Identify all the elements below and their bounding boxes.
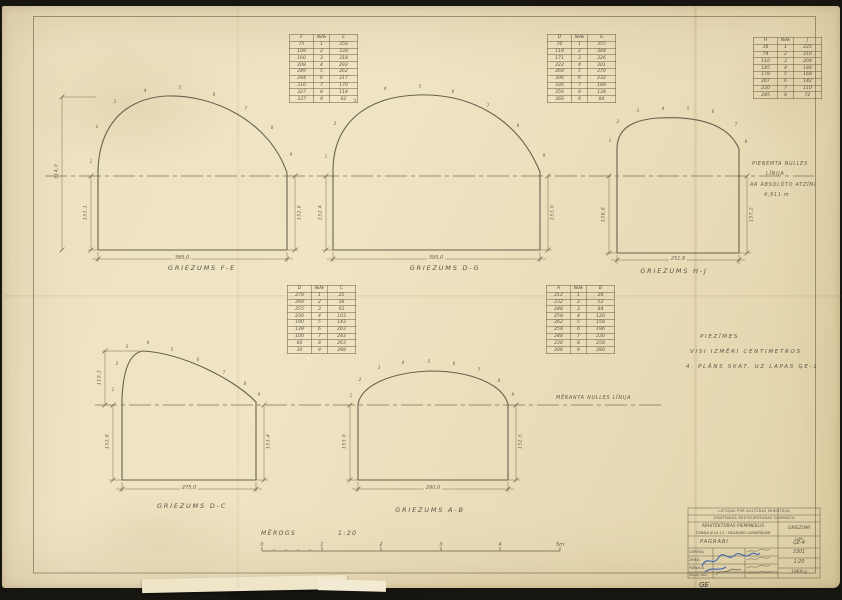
vdim-dg-left: 152,4 (319, 198, 324, 228)
table-cell: 262 (330, 68, 358, 75)
section-fe-outline (98, 96, 287, 250)
table-cell: 292 (330, 62, 358, 69)
table-cell: 232 (547, 299, 571, 306)
table-cell: 268 (548, 68, 572, 75)
vdim-fe-outer: 314,0 (55, 157, 60, 187)
width-dim-dg: 395,0 (427, 255, 445, 261)
titleblock-role-1: UZMĒRĪJA (689, 550, 712, 554)
scale-bar (262, 547, 560, 551)
table-cell: 301 (588, 62, 616, 69)
table-cell: 8 (572, 89, 588, 96)
arch-point-number: 1 (90, 159, 93, 164)
table-row: 3066232 (548, 75, 616, 82)
notes-line-plan-ref: 4. PLĀNS SKAT. UZ LAPAS ĢE-1 (686, 364, 818, 370)
table-row: 2069280 (547, 347, 615, 354)
arch-point-number: 4 (384, 86, 387, 91)
arch-point-number: 4 (144, 88, 147, 93)
table-cell: 225 (794, 44, 822, 51)
table-cell: 7 (571, 333, 587, 340)
arch-point-number: 4 (402, 360, 405, 365)
upper-zero-line-text-1: PIEŅEMTA NULLES (752, 162, 808, 167)
table-cell: 168 (794, 71, 822, 78)
titleblock-subject: PAGRABI (700, 539, 729, 545)
arch-point-number: 9 (290, 152, 293, 157)
table-cell: 158 (587, 319, 615, 326)
arch-point-number: 2 (96, 124, 99, 129)
table-cell: 84 (588, 96, 616, 103)
arch-point-number: 8 (745, 139, 748, 144)
arch-point-number: 3 (126, 344, 129, 349)
titleblock-scale: 1:20 (779, 560, 819, 565)
arch-point-number: 1 (350, 393, 353, 398)
table-cell: 143 (328, 319, 356, 326)
table-cell: 4 (312, 313, 328, 320)
arch-point-number: 7 (223, 370, 226, 375)
table-row: 3278118 (290, 89, 358, 96)
coordinate-table-dc: D№№C278121269236255363230410319051431386… (287, 285, 356, 354)
scale-tick-label: 1 (320, 542, 323, 548)
section-ab-point-numbers: 123456789 (350, 359, 515, 398)
vdim-ab-right: 152,5 (519, 427, 524, 457)
table-row: 248384 (547, 306, 615, 313)
dimension-ticks (60, 95, 750, 492)
table-cell: 9 (571, 347, 587, 354)
arch-point-number: 7 (478, 367, 481, 372)
table-cell: 118 (548, 48, 572, 55)
scale-tick-label: 3 (439, 542, 442, 548)
table-cell: 6 (571, 326, 587, 333)
table-header-cell: №№ (572, 35, 588, 42)
coordinate-table-ab: A№№B212128232252248384258412026251582586… (546, 285, 615, 354)
table-cell: 326 (588, 55, 616, 62)
table-cell: 74 (754, 51, 778, 58)
table-cell: 248 (547, 306, 571, 313)
table-cell: 336 (548, 82, 572, 89)
table-cell: 5 (312, 319, 328, 326)
table-cell: 258 (547, 313, 571, 320)
table-row: 2076142 (754, 78, 822, 85)
table-cell: 249 (290, 68, 314, 75)
table-cell: 355 (588, 41, 616, 48)
vdim-fe-left: 153,1 (84, 198, 89, 228)
table-cell: 230 (288, 313, 312, 320)
table-cell: 9 (312, 347, 328, 354)
table-cell: 170 (330, 82, 358, 89)
table-header-row: A№№B (547, 286, 615, 293)
table-cell: 337 (290, 96, 314, 103)
table-cell: 38 (754, 44, 778, 51)
table-cell: 1 (778, 44, 794, 51)
table-cell: 1 (312, 292, 328, 299)
table-cell: 103 (328, 313, 356, 320)
arch-point-number: 3 (114, 99, 117, 104)
table-cell: 190 (288, 319, 312, 326)
table-cell: 7 (314, 82, 330, 89)
section-ab-outline (358, 371, 508, 480)
width-dim-ab: 290,0 (424, 485, 442, 491)
handwritten-names (747, 549, 771, 574)
arch-point-number: 5 (419, 84, 422, 89)
table-cell: 21 (328, 292, 356, 299)
table-cell: 3 (571, 306, 587, 313)
arch-point-number: 5 (687, 106, 690, 111)
table-cell: 60 (288, 340, 312, 347)
coordinate-table-dg: D№№G701355118234417133262224301268527030… (547, 34, 616, 103)
table-header-cell: №№ (778, 38, 794, 45)
table-cell: 2 (778, 51, 794, 58)
section-label-dc: GRIEZUMS D-C (157, 502, 227, 510)
arch-point-number: 9 (258, 392, 261, 397)
table-cell: 2 (314, 48, 330, 55)
section-dg-outline (333, 95, 540, 250)
table-cell: 6 (572, 75, 588, 82)
upper-zero-line-text-2: LĪNIJA (766, 172, 785, 177)
table-cell: 160 (290, 55, 314, 62)
titleblock-role-3: PĀRBAUD. (689, 566, 712, 570)
arch-point-number: 6 (197, 357, 200, 362)
arch-point-number: 6 (712, 109, 715, 114)
corner-sheet-mark: ĢE (699, 581, 709, 589)
table-row: 381225 (754, 44, 822, 51)
table-row: 2846217 (290, 75, 358, 82)
arch-point-number: 1 (112, 387, 115, 392)
table-cell: 145 (754, 65, 778, 72)
table-cell: 230 (587, 333, 615, 340)
width-dim-hj: 251,8 (669, 256, 687, 262)
arch-point-number: 5 (179, 85, 182, 90)
notes-heading: PIEZĪMES (700, 334, 739, 340)
table-row: 232252 (547, 299, 615, 306)
table-cell: 3 (314, 55, 330, 62)
table-cell: 310 (290, 82, 314, 89)
table-row: 2584120 (547, 313, 615, 320)
titleblock-date: 1969.g (779, 570, 819, 575)
table-header-cell: G (588, 35, 616, 42)
table-cell: 5 (572, 68, 588, 75)
table-header-row: D№№C (288, 286, 356, 293)
arch-point-number: 2 (334, 121, 337, 126)
table-cell: 72 (794, 92, 822, 99)
table-cell: 280 (587, 347, 615, 354)
arch-point-number: 2 (617, 119, 620, 124)
table-cell: 5 (571, 319, 587, 326)
table-row: 1603318 (290, 55, 358, 62)
table-row: 608263 (288, 340, 356, 347)
table-row: 1713326 (548, 55, 616, 62)
table-cell: 7 (312, 333, 328, 340)
vdim-dc-left: 152,8 (106, 427, 111, 457)
arch-point-number: 8 (498, 378, 501, 383)
titleblock-role-4: DAĻAS VAD. (689, 573, 712, 577)
table-cell: 278 (288, 292, 312, 299)
table-cell: 7 (778, 85, 794, 92)
table-row: 742216 (754, 51, 822, 58)
table-header-cell: №№ (314, 35, 330, 42)
table-row: 2308258 (547, 340, 615, 347)
table-cell: 100 (288, 333, 312, 340)
table-cell: 188 (588, 82, 616, 89)
table-row: 1092338 (290, 48, 358, 55)
section-label-fe: GRIEZUMS F-E (168, 264, 236, 272)
table-header-cell: №№ (571, 286, 587, 293)
table-cell: 8 (314, 89, 330, 96)
table-cell: 230 (547, 340, 571, 347)
vdim-dc-right: 153,4 (267, 427, 272, 457)
table-cell: 258 (587, 340, 615, 347)
table-row: 2685270 (548, 68, 616, 75)
table-cell: 3 (572, 55, 588, 62)
table-header-cell: J (794, 38, 822, 45)
upper-zero-line-text-3: AR ABSOLŪTO ATZĪMI (750, 183, 816, 188)
arch-point-number: 6 (452, 89, 455, 94)
table-row: 1785168 (754, 71, 822, 78)
table-cell: 4 (571, 313, 587, 320)
table-cell: 2 (312, 299, 328, 306)
table-cell: 9 (572, 96, 588, 103)
table-cell: 230 (754, 85, 778, 92)
section-dc-point-numbers: 123456789 (112, 340, 261, 397)
table-cell: 8 (778, 92, 794, 99)
table-cell: 110 (754, 58, 778, 65)
arch-point-number: 1 (609, 138, 612, 143)
table-cell: 344 (588, 48, 616, 55)
table-cell: 6 (314, 75, 330, 82)
titleblock-order-no: 3301 (779, 550, 819, 555)
table-cell: 356 (548, 89, 572, 96)
table-cell: 4 (314, 62, 330, 69)
arch-point-number: 3 (637, 108, 640, 113)
table-cell: 248 (547, 333, 571, 340)
table-row: 3568138 (548, 89, 616, 96)
arch-point-number: 2 (359, 377, 362, 382)
dimension-lines (62, 97, 751, 492)
section-hj-outline (617, 118, 739, 253)
table-row: 366984 (548, 96, 616, 103)
table-row: 2495262 (290, 68, 358, 75)
scale-tick-label: 4 (498, 542, 501, 548)
table-cell: 36 (328, 299, 356, 306)
table-cell: 327 (290, 89, 314, 96)
table-cell: 4 (572, 62, 588, 69)
table-cell: 28 (587, 292, 615, 299)
width-dim-dc: 275,0 (180, 485, 198, 491)
table-cell: 196 (587, 326, 615, 333)
table-cell: 52 (587, 299, 615, 306)
arch-point-number: 3 (378, 365, 381, 370)
table-cell: 366 (548, 96, 572, 103)
table-row: 2224301 (548, 62, 616, 69)
table-cell: 75 (290, 41, 314, 48)
arch-point-number: 8 (271, 125, 274, 130)
vdim-dc-outer: 110,3 (98, 363, 103, 393)
table-cell: 120 (587, 313, 615, 320)
table-cell: 1 (314, 41, 330, 48)
table-cell: 263 (328, 340, 356, 347)
table-header-cell: B (587, 286, 615, 293)
arch-point-number: 4 (147, 340, 150, 345)
arch-point-number: 7 (487, 103, 490, 108)
table-cell: 70 (548, 41, 572, 48)
coordinate-table-fe: F№№E751350109233816033182084292249526228… (289, 34, 358, 103)
table-cell: 243 (328, 333, 356, 340)
table-row: 2084292 (290, 62, 358, 69)
table-cell: 262 (547, 319, 571, 326)
table-cell: 142 (794, 78, 822, 85)
table-cell: 6 (312, 326, 328, 333)
table-row: 1386203 (288, 326, 356, 333)
table-cell: 217 (330, 75, 358, 82)
arch-point-number: 6 (213, 92, 216, 97)
table-cell: 138 (588, 89, 616, 96)
table-cell: 178 (754, 71, 778, 78)
section-label-hj: GRIEZUMS H-J (640, 267, 707, 275)
table-cell: 208 (290, 62, 314, 69)
table-cell: 306 (548, 75, 572, 82)
table-cell: 270 (588, 68, 616, 75)
arch-point-number: 7 (735, 122, 738, 127)
notes-line-units: VISI IZMĒRI CENTIMETROS (690, 349, 802, 355)
table-header-row: D№№G (548, 35, 616, 42)
scanned-drawing-sheet: 123456789 123456789 12345678 123456789 1… (0, 0, 842, 600)
table-row: 1007243 (288, 333, 356, 340)
table-row: 3107170 (290, 82, 358, 89)
arch-point-number: 1 (325, 154, 328, 159)
table-row: 751350 (290, 41, 358, 48)
table-cell: 138 (288, 326, 312, 333)
titleblock-org-line1: LATVIJAS PSR KULTŪRAS MINISTRIJA (689, 509, 819, 513)
table-cell: 5 (314, 68, 330, 75)
table-row: 212128 (547, 292, 615, 299)
scale-ratio: 1:20 (338, 530, 357, 537)
table-header-row: H№№J (754, 38, 822, 45)
arch-point-number: 6 (453, 361, 456, 366)
arch-point-number: 2 (116, 361, 119, 366)
table-row: 2625158 (547, 319, 615, 326)
table-cell: 4 (778, 65, 794, 72)
table-cell: 110 (794, 85, 822, 92)
table-row: 255363 (288, 306, 356, 313)
table-cell: 206 (547, 347, 571, 354)
table-cell: 255 (288, 306, 312, 313)
table-cell: 216 (794, 51, 822, 58)
table-cell: 2 (572, 48, 588, 55)
table-row: 337962 (290, 96, 358, 103)
table-cell: 7 (572, 82, 588, 89)
coordinate-table-hj: H№№J381225742216110320414541881785168207… (753, 37, 822, 99)
table-cell: 284 (290, 75, 314, 82)
table-cell: 6 (778, 78, 794, 85)
table-row: 1905143 (288, 319, 356, 326)
table-cell: 62 (330, 96, 358, 103)
table-row: 1103204 (754, 58, 822, 65)
table-cell: 30 (288, 347, 312, 354)
arch-point-number: 5 (171, 347, 174, 352)
vdim-ab-left: 153,0 (343, 427, 348, 457)
table-row: 278121 (288, 292, 356, 299)
arch-point-number: 8 (244, 381, 247, 386)
table-cell: 204 (794, 58, 822, 65)
table-row: 3367188 (548, 82, 616, 89)
scale-tick-label: 2 (379, 542, 382, 548)
table-header-cell: E (330, 35, 358, 42)
table-row: 701355 (548, 41, 616, 48)
table-cell: 3 (312, 306, 328, 313)
table-header-cell: C (328, 286, 356, 293)
section-dc-outline (122, 351, 256, 480)
table-cell: 258 (547, 326, 571, 333)
arch-point-number: 9 (543, 153, 546, 158)
table-cell: 9 (314, 96, 330, 103)
table-cell: 84 (587, 306, 615, 313)
arch-point-number: 5 (428, 359, 431, 364)
table-cell: 203 (328, 326, 356, 333)
vdim-fe-right: 152,6 (298, 198, 303, 228)
table-cell: 188 (794, 65, 822, 72)
table-row: 269236 (288, 299, 356, 306)
section-label-ab: GRIEZUMS A-B (395, 506, 464, 514)
table-header-row: F№№E (290, 35, 358, 42)
vdim-hj-left: 156,8 (602, 200, 607, 230)
arch-point-number: 7 (245, 106, 248, 111)
table-cell: 318 (330, 55, 358, 62)
table-row: 309288 (288, 347, 356, 354)
table-cell: 1 (571, 292, 587, 299)
scale-label: MĒROGS (261, 530, 296, 537)
vdim-dg-right: 153,0 (551, 198, 556, 228)
table-cell: 63 (328, 306, 356, 313)
table-cell: 8 (312, 340, 328, 347)
arch-point-number: 8 (517, 123, 520, 128)
titleblock-sheet-no: ĢE-4 (779, 541, 819, 546)
table-header-cell: F (290, 35, 314, 42)
titleblock-role-2: ZĪMĒJA (689, 558, 712, 562)
table-cell: 207 (754, 78, 778, 85)
table-cell: 109 (290, 48, 314, 55)
table-cell: 3 (778, 58, 794, 65)
table-cell: 350 (330, 41, 358, 48)
table-cell: 118 (330, 89, 358, 96)
table-cell: 171 (548, 55, 572, 62)
table-header-cell: D (548, 35, 572, 42)
titleblock-org-line2: ZINĀTNISKĀ RESTAURĒŠANAS DARBNĪCA (689, 516, 819, 520)
titleblock-content-label: GRIEZUMI (779, 526, 819, 531)
table-cell: 269 (288, 299, 312, 306)
lower-zero-line-text: MĒRANTA NULLES LĪNIJA (556, 396, 631, 401)
arch-point-number: 4 (662, 106, 665, 111)
table-cell: 338 (330, 48, 358, 55)
table-cell: 1 (572, 41, 588, 48)
table-header-cell: A (547, 286, 571, 293)
table-cell: 222 (548, 62, 572, 69)
table-row: 2307110 (754, 85, 822, 92)
table-row: 2586196 (547, 326, 615, 333)
table-cell: 288 (328, 347, 356, 354)
scale-bar-labels: 012345m (260, 542, 564, 548)
upper-zero-line-text-4: 4,911 m (764, 193, 790, 198)
scale-tick-label: 5m (556, 542, 564, 548)
table-cell: 2 (571, 299, 587, 306)
table-cell: 8 (571, 340, 587, 347)
table-row: 1182344 (548, 48, 616, 55)
table-row: 2304103 (288, 313, 356, 320)
section-label-dg: GRIEZUMS D-G (410, 264, 481, 272)
table-cell: 232 (588, 75, 616, 82)
arch-point-number: 9 (512, 392, 515, 397)
table-cell: 212 (547, 292, 571, 299)
table-header-cell: H (754, 38, 778, 45)
table-row: 1454188 (754, 65, 822, 72)
scale-tick-label: 0 (260, 542, 263, 548)
